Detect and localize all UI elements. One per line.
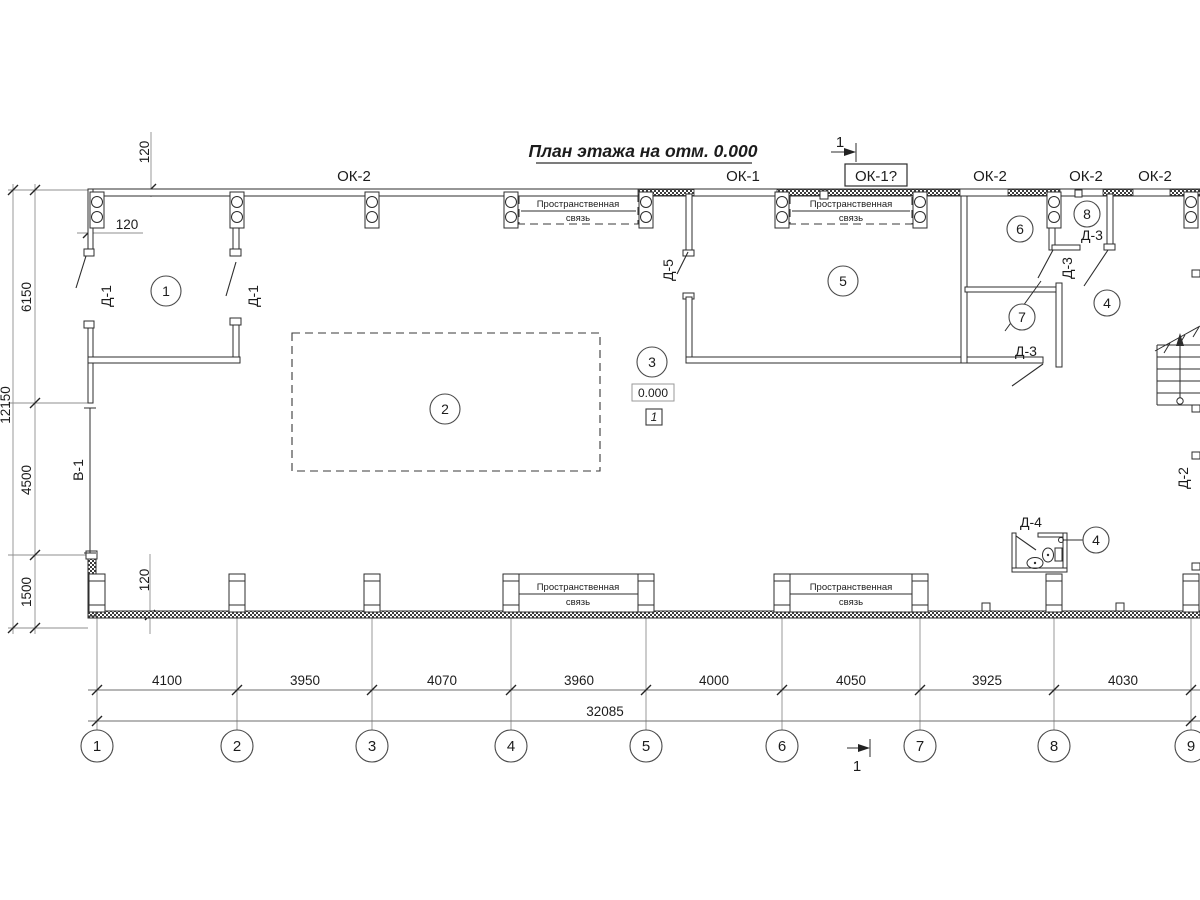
wall-cut-mark xyxy=(1192,452,1200,459)
column xyxy=(913,192,927,228)
dim-left-total: 12150 xyxy=(0,386,13,424)
room1-bottom-wall xyxy=(88,357,240,363)
column xyxy=(775,192,789,228)
spatial-brace-top-2: Пространственная связь xyxy=(790,196,912,224)
room-number: 5 xyxy=(839,273,847,289)
door-leaf-d4 xyxy=(1016,536,1036,550)
column xyxy=(364,574,380,612)
door-leaf-d3-room7 xyxy=(1012,364,1043,386)
column xyxy=(365,192,379,228)
dim-left-3: 1500 xyxy=(19,577,34,607)
room-marker-1: 1 xyxy=(151,276,181,306)
window-mullion-mark xyxy=(820,191,828,199)
room-marker-3: 3 xyxy=(637,347,667,377)
door-jamb xyxy=(683,250,694,256)
room5-left-wall-lower xyxy=(686,297,692,362)
spatial-brace-bottom-1: Пространственная связь xyxy=(503,574,654,612)
brace-label-line2: связь xyxy=(566,597,590,608)
section-arrowhead xyxy=(858,744,870,752)
section-marker-bottom: 1 xyxy=(847,739,870,775)
door-label-d1: Д-1 xyxy=(98,285,114,307)
dim-bottom-2: 3950 xyxy=(290,673,320,688)
wall-mark xyxy=(1116,603,1124,611)
axis-number: 6 xyxy=(778,738,786,755)
room-marker-6: 6 xyxy=(1007,216,1033,242)
door-jamb xyxy=(84,249,94,256)
room-number: 2 xyxy=(441,401,449,417)
room-number: 3 xyxy=(648,354,656,370)
room-number: 7 xyxy=(1018,309,1026,325)
elevation-ref: 1 xyxy=(651,410,658,424)
room7-right-wall xyxy=(1056,283,1062,367)
bottom-columns xyxy=(89,574,1199,612)
column xyxy=(503,574,519,612)
room5-left-wall-upper xyxy=(686,194,692,250)
column xyxy=(639,192,653,228)
axis-bubble-5: 5 xyxy=(630,730,662,762)
window-mullion-mark xyxy=(1075,190,1082,197)
wall-mark xyxy=(982,603,990,611)
gate-label-v1: В-1 xyxy=(70,459,86,481)
door-label-d3: Д-3 xyxy=(1015,343,1037,359)
toilet-dot xyxy=(1047,554,1049,556)
brace-label-line1: Пространственная xyxy=(537,582,620,593)
axis-bubble-2: 2 xyxy=(221,730,253,762)
staircase xyxy=(1155,326,1200,405)
left-wall-lower xyxy=(88,328,93,403)
axis-number: 8 xyxy=(1050,738,1058,755)
dim-left-2: 4500 xyxy=(19,465,34,495)
stair-arrow-start xyxy=(1177,398,1183,404)
axis-bubble-1: 1 xyxy=(81,730,113,762)
column xyxy=(504,192,518,228)
door-jamb xyxy=(1104,244,1115,250)
brace-label-line2: связь xyxy=(566,213,590,224)
section-number: 1 xyxy=(836,134,844,151)
axis-bubble-9: 9 xyxy=(1175,730,1200,762)
door-label-d1: Д-1 xyxy=(245,285,261,307)
exterior-walls xyxy=(84,189,1200,618)
room-marker-7: 7 xyxy=(1009,304,1035,330)
dim-bottom-total: 32085 xyxy=(586,704,624,719)
door-jamb xyxy=(230,249,241,256)
wall-cut-mark xyxy=(1192,563,1200,570)
page-title: План этажа на отм. 0.000 xyxy=(529,141,758,161)
dimension-lines xyxy=(88,690,1200,721)
dim-bottom-1: 4100 xyxy=(152,673,182,688)
column xyxy=(90,192,104,228)
wall-cut-mark xyxy=(1192,270,1200,277)
section-marker-top: 1 xyxy=(831,134,856,162)
column xyxy=(1046,574,1062,612)
room-markers: 1 2 3 5 6 7 8 4 4 xyxy=(151,201,1120,553)
axis-number: 5 xyxy=(642,738,650,755)
dim-offset-120-bottom: 120 xyxy=(137,569,152,592)
column xyxy=(1047,192,1061,228)
window-label-ok2: ОК-2 xyxy=(1138,168,1172,185)
door-leaf-d3-room8-right xyxy=(1084,250,1108,286)
room8-right-wall xyxy=(1107,194,1113,247)
section-arrowhead xyxy=(844,148,856,156)
door-jamb xyxy=(84,321,94,328)
toilet-tank xyxy=(1055,548,1062,561)
room-number: 4 xyxy=(1103,295,1111,311)
column xyxy=(912,574,928,612)
window-label-ok2: ОК-2 xyxy=(1069,168,1103,185)
axis-bubble-3: 3 xyxy=(356,730,388,762)
brace-label-line2: связь xyxy=(839,597,863,608)
axis-number: 4 xyxy=(507,738,515,755)
grid-axis-bubbles: 1 2 3 4 5 6 7 8 9 xyxy=(81,730,1200,762)
axis-number: 3 xyxy=(368,738,376,755)
door-jamb xyxy=(230,318,241,325)
axis-number: 9 xyxy=(1187,738,1195,755)
elevation-marker: 0.000 1 xyxy=(632,384,674,425)
window-label-ok1-query: ОК-1? xyxy=(855,168,897,185)
dimension-ticks xyxy=(8,184,1196,726)
drawing-title: План этажа на отм. 0.000 xyxy=(529,141,758,163)
dim-bottom-3: 4070 xyxy=(427,673,457,688)
door-leaf-d3-room8-left xyxy=(1038,250,1053,278)
room1-right-wall-lower xyxy=(233,325,239,362)
axis-number: 7 xyxy=(916,738,924,755)
column xyxy=(89,574,105,612)
room-number: 6 xyxy=(1016,221,1024,237)
wall-end xyxy=(86,551,97,559)
axis-number: 1 xyxy=(93,738,101,755)
spatial-brace-top-1: Пространственная связь xyxy=(519,196,638,224)
column xyxy=(1183,574,1199,612)
wc-bottom-wall xyxy=(1012,568,1067,572)
door-label-d2: Д-2 xyxy=(1175,467,1191,489)
window-hatch xyxy=(777,190,960,196)
room-marker-5: 5 xyxy=(828,266,858,296)
dim-bottom-8: 4030 xyxy=(1108,673,1138,688)
window-label-ok2: ОК-2 xyxy=(337,168,371,185)
column xyxy=(230,192,244,228)
door-leaf-d1-right xyxy=(226,262,236,296)
door-label-d4: Д-4 xyxy=(1020,514,1042,530)
floor-plan-page: Пространственная связь Пространственная … xyxy=(0,0,1200,900)
column xyxy=(638,574,654,612)
room-number: 4 xyxy=(1092,532,1100,548)
dim-offset-120-left: 120 xyxy=(116,217,139,232)
axis-bubble-8: 8 xyxy=(1038,730,1070,762)
door-leaf-d1-left xyxy=(76,256,86,288)
door-label-d3: Д-3 xyxy=(1059,257,1075,279)
room5-right-wall xyxy=(961,196,967,363)
column xyxy=(229,574,245,612)
dim-left-1: 6150 xyxy=(19,282,34,312)
brace-label-line1: Пространственная xyxy=(810,199,893,210)
room8-bottom-wall xyxy=(1052,245,1080,250)
room6-room7-divider-wall xyxy=(965,287,1057,292)
floor-plan-drawing: Пространственная связь Пространственная … xyxy=(0,0,1200,900)
room-number: 8 xyxy=(1083,206,1091,222)
wc-left-wall xyxy=(1012,533,1016,572)
axis-bubble-4: 4 xyxy=(495,730,527,762)
door-leaves xyxy=(76,250,1108,550)
wall-cut-mark xyxy=(1192,405,1200,412)
window-label-ok1: ОК-1 xyxy=(726,168,760,185)
wc-fixtures xyxy=(1027,548,1062,569)
room-marker-4: 4 xyxy=(1094,290,1120,316)
elevation-value: 0.000 xyxy=(638,386,668,400)
brace-label-line1: Пространственная xyxy=(537,199,620,210)
dim-bottom-7: 3925 xyxy=(972,673,1002,688)
door-label-d3: Д-3 xyxy=(1081,227,1103,243)
brace-label-line1: Пространственная xyxy=(810,582,893,593)
room-marker-2: 2 xyxy=(430,394,460,424)
brace-label-line2: связь xyxy=(839,213,863,224)
axis-bubble-7: 7 xyxy=(904,730,936,762)
interior-walls xyxy=(88,192,1115,572)
sink-dot xyxy=(1034,562,1036,564)
room-marker-8: 8 xyxy=(1074,201,1100,227)
room5-bottom-wall xyxy=(686,357,1043,363)
dim-bottom-5: 4000 xyxy=(699,673,729,688)
window-labels: ОК-2 ОК-1 ОК-1? ОК-2 ОК-2 ОК-2 xyxy=(337,164,1172,186)
column xyxy=(1184,192,1198,228)
section-number: 1 xyxy=(853,758,861,775)
window-label-ok2: ОК-2 xyxy=(973,168,1007,185)
axis-bubble-6: 6 xyxy=(766,730,798,762)
axis-number: 2 xyxy=(233,738,241,755)
dim-bottom-6: 4050 xyxy=(836,673,866,688)
column xyxy=(774,574,790,612)
spatial-brace-bottom-2: Пространственная связь xyxy=(774,574,928,612)
room-number: 1 xyxy=(162,283,170,299)
dim-offset-120-top: 120 xyxy=(137,141,152,164)
door-label-d5: Д-5 xyxy=(660,259,676,281)
dim-bottom-4: 3960 xyxy=(564,673,594,688)
